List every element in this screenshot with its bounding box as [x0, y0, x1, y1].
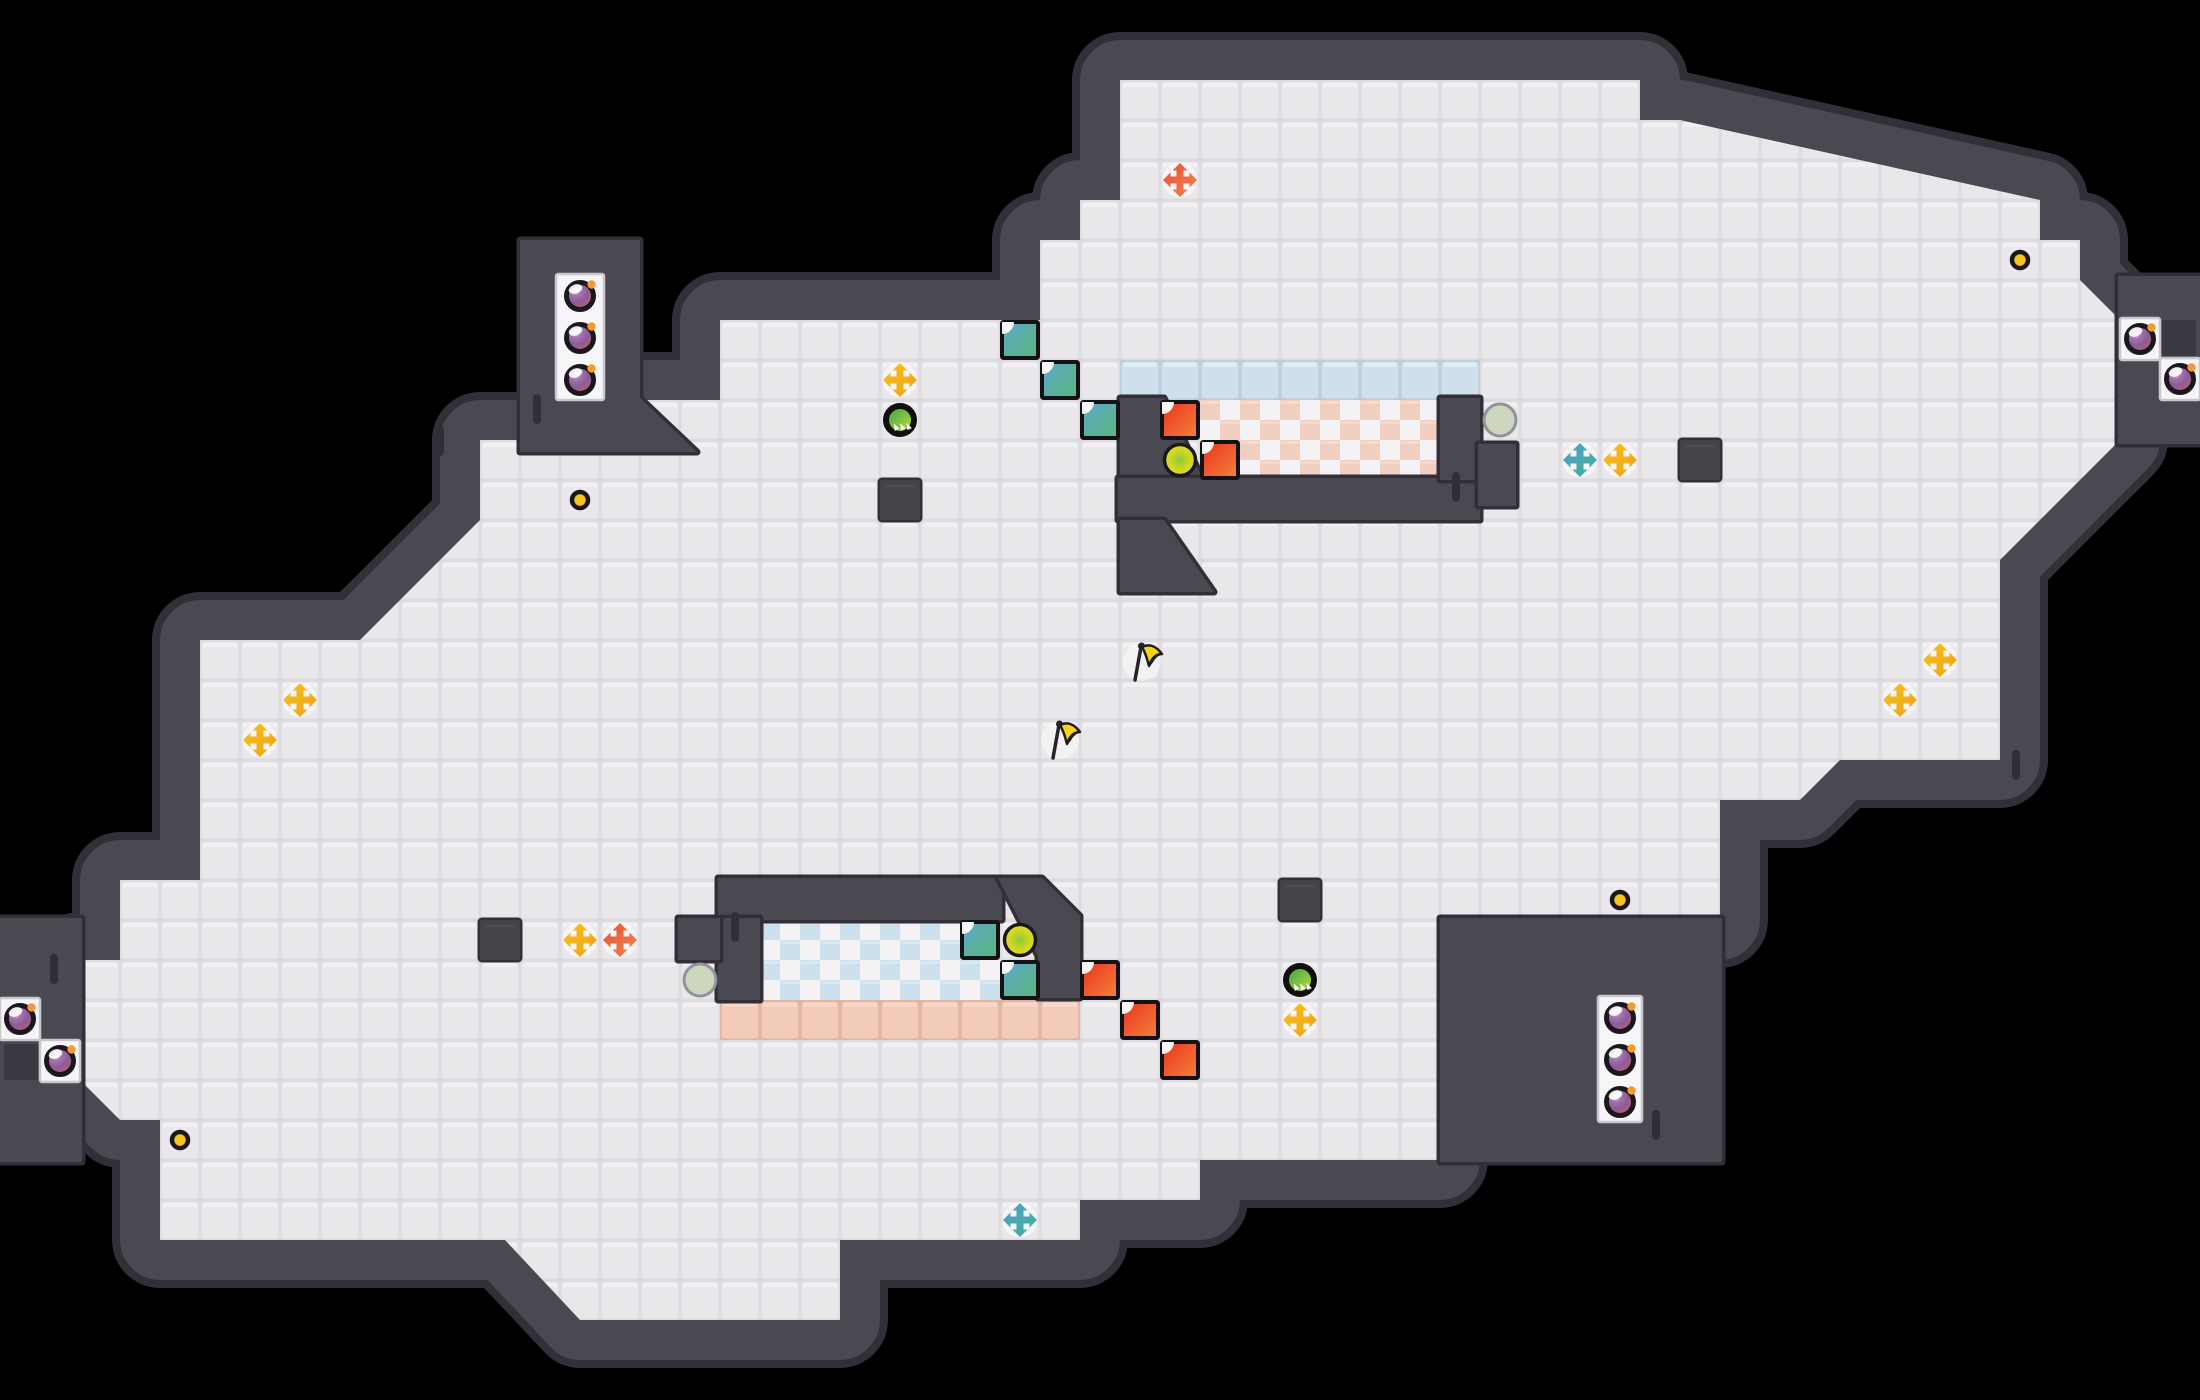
ring-orb[interactable]: [1005, 925, 1036, 956]
bomb-pickup[interactable]: [1607, 1086, 1636, 1115]
wall-block: [880, 480, 920, 520]
ring-orb[interactable]: [1165, 445, 1196, 476]
wall-tick: [533, 394, 541, 424]
arrow-cross-pickup-yellow[interactable]: [1923, 643, 1958, 678]
spike-orb[interactable]: [1286, 966, 1314, 994]
bomb-pickup[interactable]: [2127, 323, 2156, 352]
wall-tick: [2012, 750, 2020, 780]
pool-top-bottom-wall: [1118, 478, 1480, 520]
spike-orb[interactable]: [886, 406, 914, 434]
notch-square-red[interactable]: [1082, 962, 1118, 998]
coin-dot[interactable]: [1612, 892, 1628, 908]
bomb-pickup[interactable]: [567, 280, 596, 309]
zone-warm: [720, 1000, 1080, 1040]
arrow-cross-pickup-yellow[interactable]: [243, 723, 278, 758]
notch-square-teal[interactable]: [1002, 322, 1038, 358]
notch-square-teal[interactable]: [962, 922, 998, 958]
arrow-cross-pickup-yellow[interactable]: [1603, 443, 1638, 478]
arrow-cross-pickup-yellow[interactable]: [563, 923, 598, 958]
bomb-pickup[interactable]: [1607, 1002, 1636, 1031]
notch-square-red[interactable]: [1162, 402, 1198, 438]
notch-square-red[interactable]: [1162, 1042, 1198, 1078]
wall-block: [1280, 880, 1320, 920]
map-canvas: [0, 0, 2200, 1400]
arrow-cross-pickup-orange[interactable]: [603, 923, 638, 958]
arrow-cross-pickup-yellow[interactable]: [883, 363, 918, 398]
arrow-cross-pickup-yellow[interactable]: [283, 683, 318, 718]
bomb-pickup[interactable]: [7, 1003, 36, 1032]
coin-dot[interactable]: [172, 1132, 188, 1148]
arrow-cross-pickup-yellow[interactable]: [1883, 683, 1918, 718]
coin-dot[interactable]: [2012, 252, 2028, 268]
wall-tick: [50, 954, 58, 984]
wall-tick: [1652, 1110, 1660, 1140]
bomb-pickup[interactable]: [567, 322, 596, 351]
notch-square-red[interactable]: [1202, 442, 1238, 478]
bomb-pickup[interactable]: [567, 364, 596, 393]
arrow-cross-pickup-yellow[interactable]: [1283, 1003, 1318, 1038]
wall-block: [480, 920, 520, 960]
pool-top-arm: [1478, 444, 1516, 506]
bomb-pickup[interactable]: [47, 1045, 76, 1074]
arrow-cross-pickup-teal[interactable]: [1563, 443, 1598, 478]
wall-block: [1680, 440, 1720, 480]
notch-square-red[interactable]: [1122, 1002, 1158, 1038]
arrow-cross-pickup-orange[interactable]: [1163, 163, 1198, 198]
rock[interactable]: [1484, 404, 1516, 436]
wall-tick: [436, 426, 444, 456]
bomb-pickup[interactable]: [2167, 363, 2196, 392]
wall-recess: [4, 1044, 38, 1080]
game-level-map: [0, 0, 2200, 1400]
structure-bottom-right: [1440, 918, 1722, 1162]
wall-recess: [2162, 320, 2196, 356]
notch-square-teal[interactable]: [1082, 402, 1118, 438]
notch-square-teal[interactable]: [1002, 962, 1038, 998]
pool-bottom-protrusion: [678, 918, 720, 960]
arrow-cross-pickup-teal[interactable]: [1003, 1203, 1038, 1238]
coin-dot[interactable]: [572, 492, 588, 508]
wall-tick: [731, 912, 739, 942]
pool-top-right-wall: [1440, 398, 1480, 480]
wall-tick: [1452, 472, 1460, 502]
rock[interactable]: [684, 964, 716, 996]
pool-bottom-top-wall: [718, 878, 1002, 920]
notch-square-teal[interactable]: [1042, 362, 1078, 398]
zone-ice: [1120, 360, 1480, 400]
bomb-pickup[interactable]: [1607, 1044, 1636, 1073]
